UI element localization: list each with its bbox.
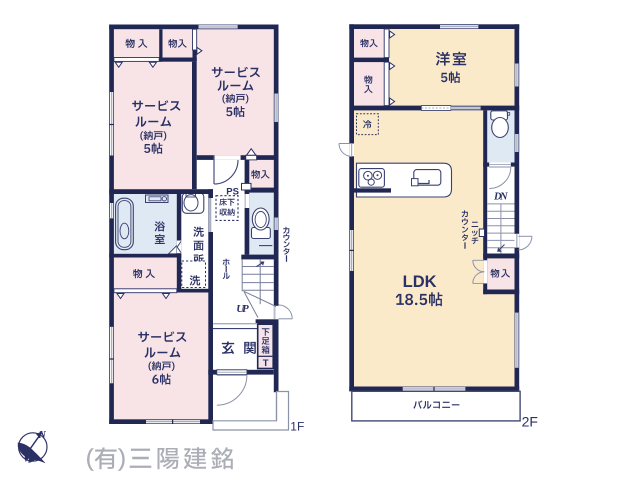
- svg-text:N: N: [38, 430, 47, 441]
- svg-text:T: T: [263, 358, 269, 369]
- svg-text:2F: 2F: [522, 414, 538, 430]
- svg-text:UP: UP: [236, 303, 249, 315]
- svg-text:1F: 1F: [290, 419, 304, 433]
- svg-text:DN: DN: [493, 191, 508, 202]
- svg-text:LDK: LDK: [403, 273, 437, 291]
